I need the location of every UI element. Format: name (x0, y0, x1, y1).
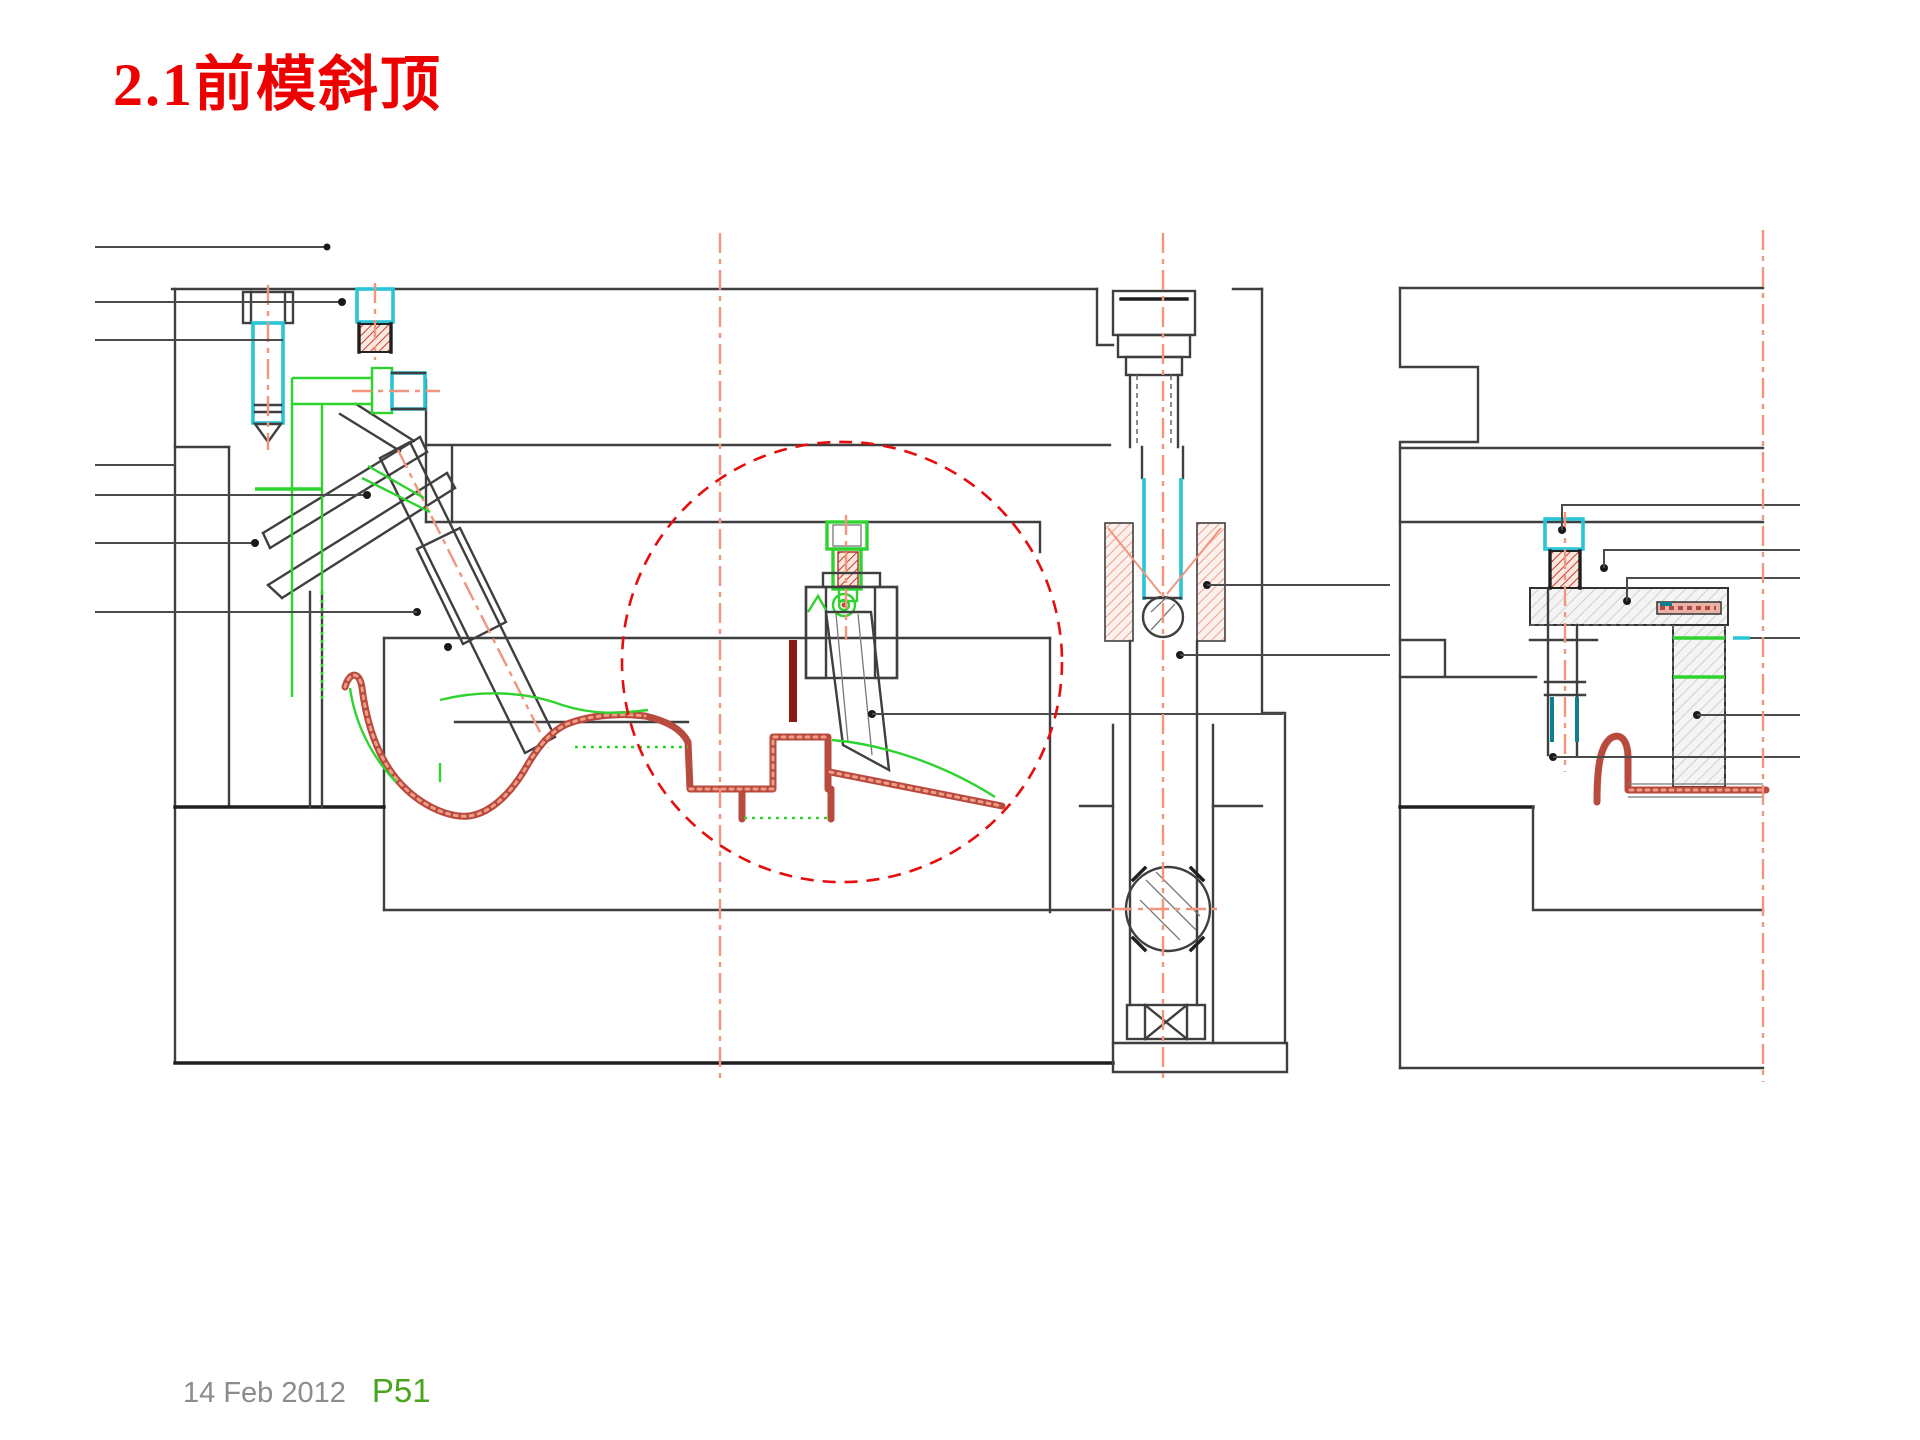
cap-screw-bolt (243, 285, 293, 450)
detail-highlight-circle (622, 442, 1062, 882)
leader-lines-left (95, 244, 417, 613)
green-reference-lines (255, 378, 372, 700)
set-screw-bolt (357, 283, 393, 360)
cavity-plate-hatched (1530, 588, 1728, 625)
footer-date: 14 Feb 2012 (183, 1377, 346, 1410)
right-section-view (1400, 230, 1800, 1082)
insert-block-hatched (1673, 625, 1800, 787)
angled-lifter-rod (362, 442, 555, 753)
slide-footer: 14 Feb 2012 P51 (183, 1372, 431, 1410)
mold-assembly-drawing (0, 0, 1920, 1440)
lifter-screw-assembly (1545, 512, 1585, 772)
left-section-view (95, 233, 1390, 1080)
slide: 2.1前模斜顶 (0, 0, 1920, 1440)
plate-outlines (172, 289, 1287, 1072)
sprue-support-column (1105, 233, 1390, 1080)
page-number: P51 (372, 1372, 431, 1410)
molded-part-profile (345, 675, 1002, 819)
horizontal-screw (352, 368, 440, 413)
